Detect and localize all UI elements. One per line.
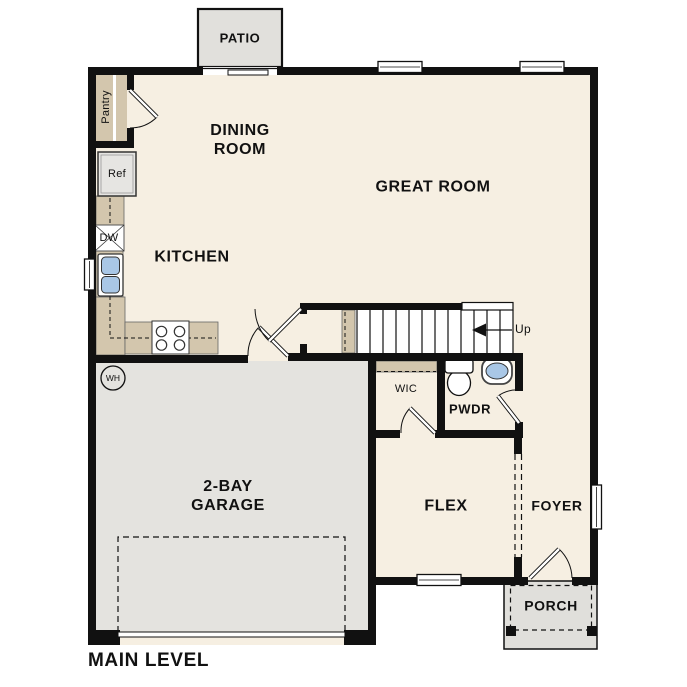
flex-window xyxy=(417,575,461,586)
patio-sliding-door xyxy=(203,67,277,75)
refrigerator-label: Ref xyxy=(108,168,126,180)
great-room-window-left xyxy=(378,62,422,73)
garage-door xyxy=(118,632,345,637)
powder-label: PWDR xyxy=(449,400,491,419)
pantry-label: Pantry xyxy=(100,90,112,124)
water-heater-label: WH xyxy=(106,373,120,383)
stair-closet-shelf xyxy=(342,310,355,353)
powder-sink-icon xyxy=(482,358,512,384)
flex-label: FLEX xyxy=(424,497,467,516)
toilet-icon xyxy=(445,359,473,396)
porch-label: PORCH xyxy=(524,597,578,616)
kitchen-window xyxy=(85,259,95,290)
great-room-label: GREAT ROOM xyxy=(375,178,490,197)
kitchen-sink-icon xyxy=(98,254,123,296)
stair-railing xyxy=(462,303,513,311)
kitchen-label: KITCHEN xyxy=(154,248,229,267)
porch-post-left xyxy=(506,626,516,636)
patio-label: PATIO xyxy=(220,29,261,48)
wic-label: WIC xyxy=(395,383,417,395)
wic-shelf xyxy=(376,361,437,372)
dining-room-label: DINING ROOM xyxy=(190,121,290,159)
stairs-up-label: Up xyxy=(515,322,531,336)
porch-post-right xyxy=(587,626,597,636)
stove-icon xyxy=(152,321,189,354)
plan-title: MAIN LEVEL xyxy=(88,650,209,672)
garage-label: 2-BAY GARAGE xyxy=(178,477,278,515)
foyer-window xyxy=(592,485,602,529)
dishwasher-label: DW xyxy=(100,232,119,244)
stair-floor xyxy=(355,310,513,353)
foyer-label: FOYER xyxy=(531,497,582,516)
great-room-window-right xyxy=(520,62,564,73)
floor-plan: PATIO DINING ROOM GREAT ROOM KITCHEN 2-B… xyxy=(0,0,687,687)
